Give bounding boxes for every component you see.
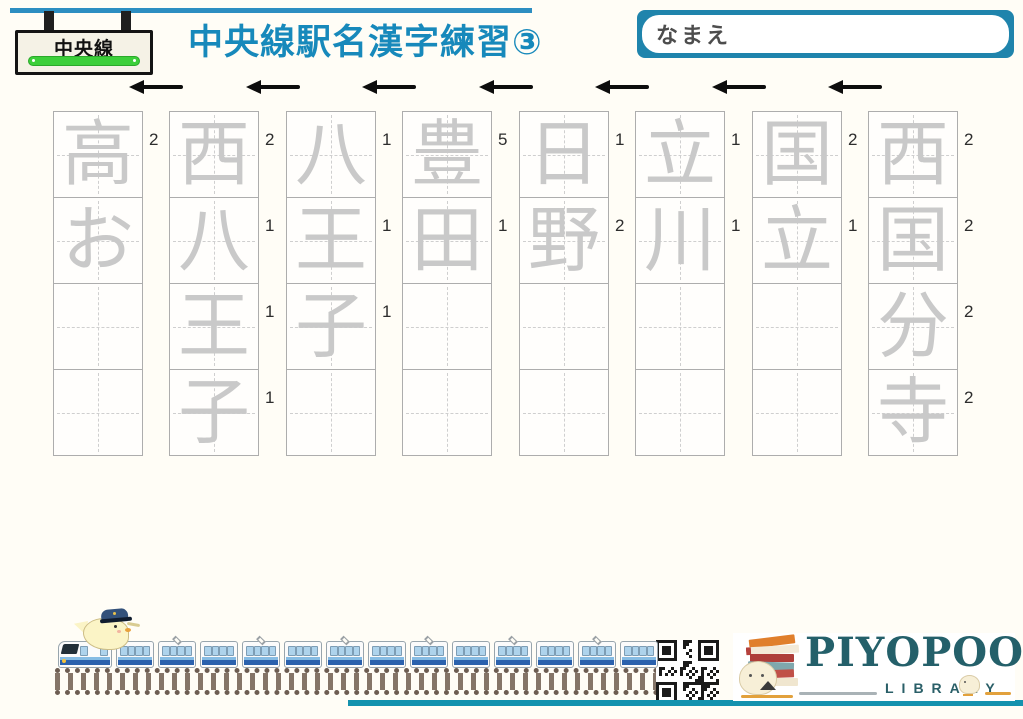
- trace-character: 川: [636, 198, 724, 283]
- practice-cell: [519, 283, 609, 370]
- trace-character: [753, 284, 841, 369]
- grade-number: 2: [848, 130, 857, 150]
- station-column-1: 高お: [53, 111, 143, 456]
- practice-cell: [635, 283, 725, 370]
- car-window: [540, 646, 548, 656]
- grade-number: 1: [615, 130, 624, 150]
- trace-character: 国: [753, 112, 841, 197]
- practice-cell: 八: [169, 197, 259, 284]
- car-window: [422, 646, 430, 656]
- practice-cell: 王: [286, 197, 376, 284]
- car-window: [506, 646, 514, 656]
- practice-cell: 子: [169, 369, 259, 456]
- grade-number: 1: [382, 302, 391, 322]
- car-windows: [456, 646, 486, 656]
- grade-number: 5: [498, 130, 507, 150]
- car-stripe: [496, 657, 530, 665]
- train-car: [578, 641, 616, 668]
- car-window: [170, 646, 178, 656]
- car-window: [555, 646, 563, 656]
- car-window: [288, 646, 296, 656]
- car-stripe: [328, 657, 362, 665]
- chick-beak: [125, 628, 131, 632]
- trace-character: 高: [54, 112, 142, 197]
- mini-chick-illustration: [959, 675, 980, 694]
- trace-character: お: [54, 198, 142, 283]
- practice-cell: [286, 369, 376, 456]
- chick-blush: [117, 630, 121, 633]
- car-window: [639, 646, 647, 656]
- car-stripe: [60, 657, 110, 665]
- car-stripe: [244, 657, 278, 665]
- practice-cell: 田: [402, 197, 492, 284]
- headlight-icon: [62, 659, 66, 663]
- car-stripe: [286, 657, 320, 665]
- car-window: [269, 646, 277, 656]
- grade-number: 2: [964, 302, 973, 322]
- practice-cell: 国: [752, 111, 842, 198]
- car-window: [548, 646, 556, 656]
- car-window: [563, 646, 571, 656]
- car-windows: [624, 646, 654, 656]
- train-car: [410, 641, 448, 668]
- grade-number: 1: [265, 216, 274, 236]
- car-stripe: [160, 657, 194, 665]
- practice-cell: 王: [169, 283, 259, 370]
- car-window: [303, 646, 311, 656]
- car-window: [471, 646, 479, 656]
- car-window: [185, 646, 193, 656]
- trace-character: 国: [869, 198, 957, 283]
- grade-number: 1: [731, 216, 740, 236]
- trace-character: 田: [403, 198, 491, 283]
- practice-cell: [53, 369, 143, 456]
- car-windows: [330, 646, 360, 656]
- trace-character: 日: [520, 112, 608, 197]
- trace-character: [54, 284, 142, 369]
- grade-number: 1: [265, 302, 274, 322]
- grade-number: 2: [964, 130, 973, 150]
- car-window: [456, 646, 464, 656]
- car-window: [414, 646, 422, 656]
- car-window: [632, 646, 640, 656]
- trace-character: [287, 370, 375, 455]
- car-stripe: [622, 657, 656, 665]
- station-column-6: 立川: [635, 111, 725, 456]
- logo-brand-text: PIYOPOO: [805, 629, 1023, 676]
- practice-cell: 高: [53, 111, 143, 198]
- practice-cell: 西: [169, 111, 259, 198]
- car-window: [143, 646, 151, 656]
- grade-number: 1: [848, 216, 857, 236]
- trace-character: 立: [636, 112, 724, 197]
- grade-number: 2: [265, 130, 274, 150]
- train-car: [284, 641, 322, 668]
- car-window: [162, 646, 170, 656]
- car-window: [513, 646, 521, 656]
- car-window: [219, 646, 227, 656]
- trace-character: 野: [520, 198, 608, 283]
- practice-grid: 高お2西八王子2111八王子111豊田51日野12立川11国立21西国分寺222…: [0, 0, 1023, 719]
- practice-cell: 西: [868, 111, 958, 198]
- train-car: [494, 641, 532, 668]
- worksheet-page: 中央線 中央線駅名漢字練習③ なまえ 高お2西八王子2111八王子111豊田51…: [0, 0, 1023, 719]
- train-car: [158, 641, 196, 668]
- station-column-3: 八王子: [286, 111, 376, 456]
- station-column-5: 日野: [519, 111, 609, 456]
- chick-eye: [114, 625, 117, 628]
- car-window: [177, 646, 185, 656]
- station-column-4: 豊田: [402, 111, 492, 456]
- practice-cell: 国: [868, 197, 958, 284]
- train-car: [368, 641, 406, 668]
- car-stripe: [118, 657, 152, 665]
- practice-cell: [752, 369, 842, 456]
- practice-cell: 立: [635, 111, 725, 198]
- logo-underline-orange-right: [985, 692, 1011, 695]
- trace-character: 八: [170, 198, 258, 283]
- car-stripe: [412, 657, 446, 665]
- grade-number: 1: [498, 216, 507, 236]
- car-window: [338, 646, 346, 656]
- grade-number: 2: [964, 216, 973, 236]
- trace-character: 王: [287, 198, 375, 283]
- car-windows: [582, 646, 612, 656]
- practice-cell: 日: [519, 111, 609, 198]
- trace-character: 西: [170, 112, 258, 197]
- car-windows: [498, 646, 528, 656]
- train-car: [536, 641, 574, 668]
- car-window: [227, 646, 235, 656]
- practice-cell: お: [53, 197, 143, 284]
- train-car: [326, 641, 364, 668]
- practice-cell: [752, 283, 842, 370]
- car-window: [429, 646, 437, 656]
- car-windows: [414, 646, 444, 656]
- car-window: [437, 646, 445, 656]
- car-windows: [372, 646, 402, 656]
- track-ties: [55, 673, 659, 690]
- trace-character: [54, 370, 142, 455]
- car-window: [330, 646, 338, 656]
- practice-cell: 子: [286, 283, 376, 370]
- trace-character: 八: [287, 112, 375, 197]
- car-window: [647, 646, 655, 656]
- conductor-chick-illustration: [74, 609, 140, 649]
- car-stripe: [580, 657, 614, 665]
- railroad-track: [55, 668, 659, 695]
- car-window: [464, 646, 472, 656]
- practice-cell: 分: [868, 283, 958, 370]
- trace-character: 王: [170, 284, 258, 369]
- car-windows: [246, 646, 276, 656]
- station-column-7: 国立: [752, 111, 842, 456]
- trace-character: [520, 370, 608, 455]
- trace-character: [403, 370, 491, 455]
- car-window: [590, 646, 598, 656]
- piyopoo-library-logo: PIYOPOO LIBRARY: [733, 633, 1015, 701]
- trace-character: [520, 284, 608, 369]
- car-window: [261, 646, 269, 656]
- grade-number: 1: [382, 216, 391, 236]
- trace-character: [753, 370, 841, 455]
- car-windows: [162, 646, 192, 656]
- train-car: [452, 641, 490, 668]
- car-window: [311, 646, 319, 656]
- car-window: [624, 646, 632, 656]
- practice-cell: 豊: [402, 111, 492, 198]
- train-car: [620, 641, 658, 668]
- car-window: [498, 646, 506, 656]
- station-column-8: 西国分寺: [868, 111, 958, 456]
- car-window: [597, 646, 605, 656]
- rail-bottom: [55, 690, 659, 695]
- grade-number: 2: [615, 216, 624, 236]
- car-windows: [288, 646, 318, 656]
- car-window: [372, 646, 380, 656]
- car-stripe: [454, 657, 488, 665]
- train-car: [200, 641, 238, 668]
- practice-cell: 寺: [868, 369, 958, 456]
- practice-cell: [519, 369, 609, 456]
- book-stack-illustration: [737, 635, 807, 699]
- practice-cell: [402, 283, 492, 370]
- trace-character: [403, 284, 491, 369]
- car-windows: [540, 646, 570, 656]
- grade-number: 2: [964, 388, 973, 408]
- car-windows: [204, 646, 234, 656]
- chick-wing: [127, 622, 140, 627]
- train-illustration: [58, 641, 658, 668]
- car-window: [296, 646, 304, 656]
- trace-character: 子: [170, 370, 258, 455]
- car-stripe: [370, 657, 404, 665]
- grade-number: 1: [382, 130, 391, 150]
- car-window: [605, 646, 613, 656]
- trace-character: 西: [869, 112, 957, 197]
- logo-underline-orange-left: [741, 695, 793, 698]
- car-window: [204, 646, 212, 656]
- car-window: [246, 646, 254, 656]
- practice-cell: [402, 369, 492, 456]
- grade-number: 2: [149, 130, 158, 150]
- car-window: [479, 646, 487, 656]
- car-window: [387, 646, 395, 656]
- trace-character: 子: [287, 284, 375, 369]
- qr-code: [656, 640, 719, 703]
- car-window: [521, 646, 529, 656]
- logo-underline-gray: [799, 692, 877, 695]
- car-window: [212, 646, 220, 656]
- trace-character: 分: [869, 284, 957, 369]
- grade-number: 1: [731, 130, 740, 150]
- trace-character: 立: [753, 198, 841, 283]
- car-stripe: [538, 657, 572, 665]
- car-window: [353, 646, 361, 656]
- trace-character: [636, 370, 724, 455]
- trace-character: [636, 284, 724, 369]
- car-window: [254, 646, 262, 656]
- car-stripe: [202, 657, 236, 665]
- car-window: [380, 646, 388, 656]
- car-window: [345, 646, 353, 656]
- station-column-2: 西八王子: [169, 111, 259, 456]
- practice-cell: [635, 369, 725, 456]
- cap-badge: [113, 612, 116, 615]
- trace-character: 豊: [403, 112, 491, 197]
- car-window: [582, 646, 590, 656]
- grade-number: 1: [265, 388, 274, 408]
- practice-cell: 八: [286, 111, 376, 198]
- practice-cell: [53, 283, 143, 370]
- car-window: [395, 646, 403, 656]
- train-car: [242, 641, 280, 668]
- practice-cell: 立: [752, 197, 842, 284]
- practice-cell: 野: [519, 197, 609, 284]
- practice-cell: 川: [635, 197, 725, 284]
- trace-character: 寺: [869, 370, 957, 455]
